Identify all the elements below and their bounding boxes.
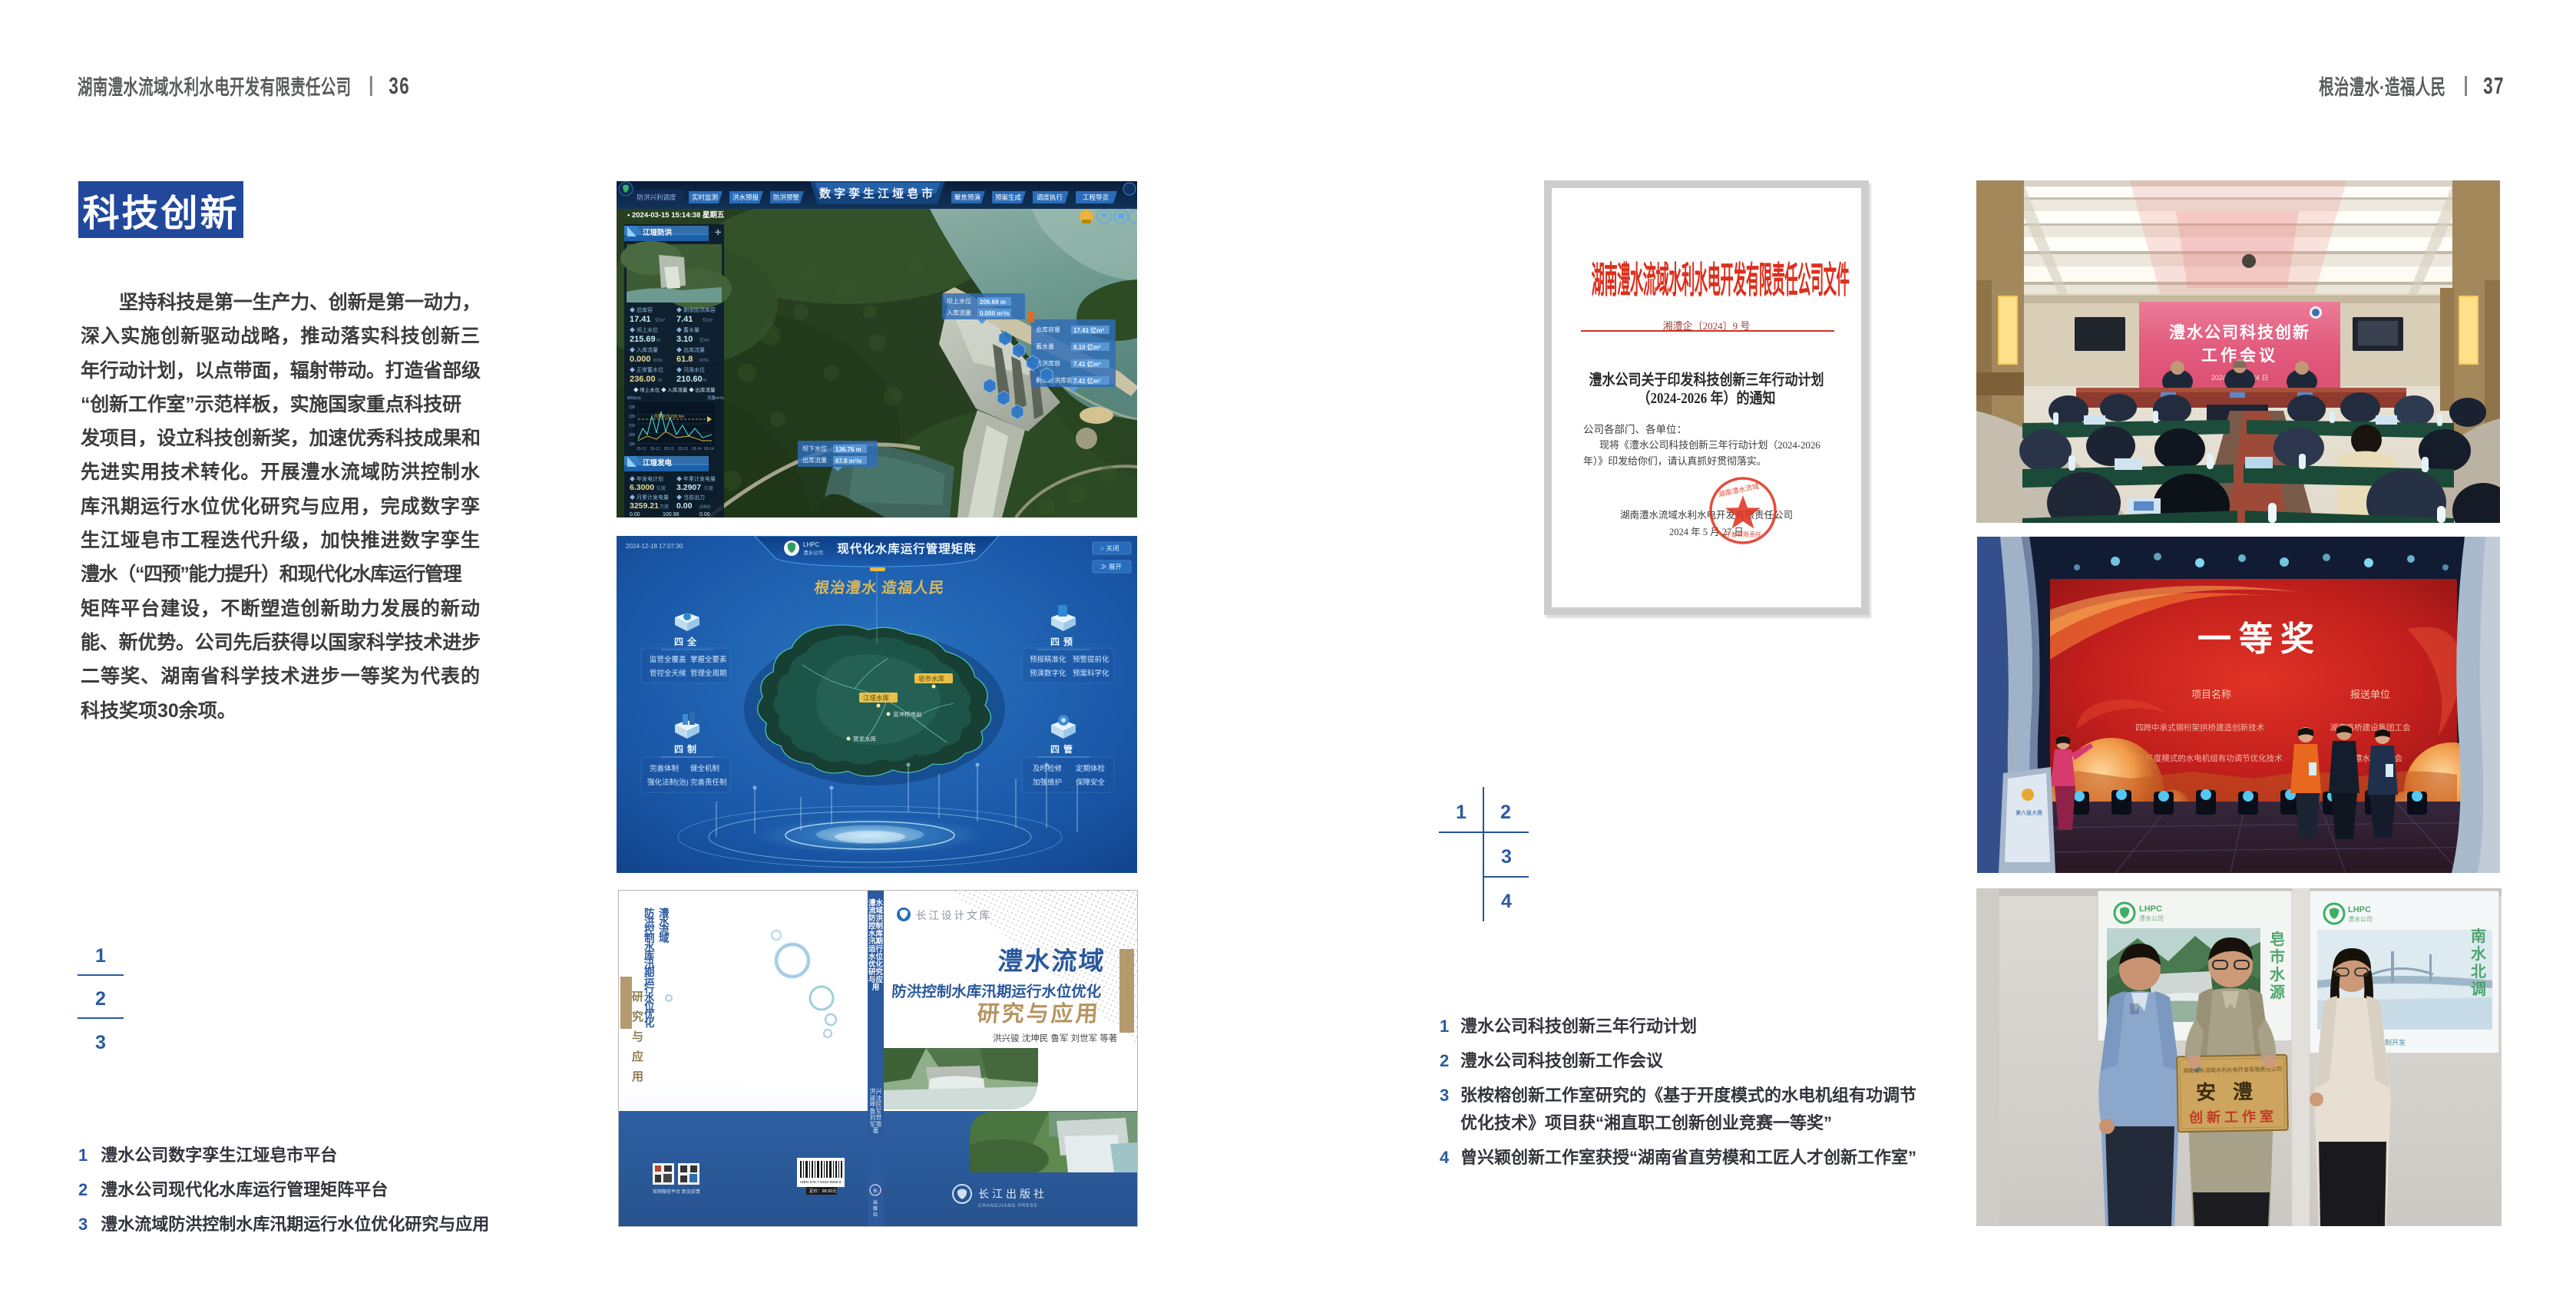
svg-text:澧水公司: 澧水公司 xyxy=(2139,914,2164,922)
svg-text:17.41: 17.41 xyxy=(630,315,651,324)
svg-text:实时监测: 实时监测 xyxy=(692,193,718,201)
svg-text:◆ 汛限水位: ◆ 汛限水位 xyxy=(676,366,705,373)
svg-text:安澧: 安澧 xyxy=(2196,1080,2270,1104)
svg-text:预演数字化: 预演数字化 xyxy=(1030,669,1066,678)
svg-text:136.76 m: 136.76 m xyxy=(835,446,861,453)
svg-text:3.10: 3.10 xyxy=(676,335,693,344)
svg-text:开发有限责任: 开发有限责任 xyxy=(1724,531,1761,538)
svg-text:四制: 四制 xyxy=(674,743,700,755)
svg-text:保障安全: 保障安全 xyxy=(1076,778,1106,787)
svg-text:210: 210 xyxy=(629,424,636,428)
svg-text:LHPC: LHPC xyxy=(2139,904,2162,914)
svg-text:监管全覆盖: 监管全覆盖 xyxy=(650,655,686,664)
svg-text:亿度: 亿度 xyxy=(656,485,666,491)
svg-text:健全机制: 健全机制 xyxy=(690,764,719,773)
svg-text:宜冲桥电站: 宜冲桥电站 xyxy=(893,710,922,718)
svg-text:m: m xyxy=(703,379,706,383)
svg-text:澧水公司科技创新: 澧水公司科技创新 xyxy=(2169,323,2310,342)
svg-text:◆ 坝上水位 ◆ 入库流量 ◆ 出库流量: ◆ 坝上水位 ◆ 入库流量 ◆ 出库流量 xyxy=(633,386,716,393)
svg-text:江垭水库: 江垭水库 xyxy=(863,694,890,702)
svg-text:四管: 四管 xyxy=(1050,743,1076,755)
svg-text:m: m xyxy=(658,379,662,383)
svg-text:强化法制(治): 强化法制(治) xyxy=(647,778,689,787)
svg-text:管理全周期: 管理全周期 xyxy=(690,669,727,678)
svg-text:官网微信平台 意见反馈: 官网微信平台 意见反馈 xyxy=(653,1189,700,1195)
svg-text:◆ 蓄水量: ◆ 蓄水量 xyxy=(676,326,699,333)
svg-text:0.000 m³/s: 0.000 m³/s xyxy=(980,310,1010,317)
svg-text:四预: 四预 xyxy=(1050,636,1076,647)
svg-text:总库容量: 总库容量 xyxy=(1036,326,1060,333)
svg-text:根治澧水 造福人民: 根治澧水 造福人民 xyxy=(813,579,946,597)
svg-text:定价：98.00元: 定价：98.00元 xyxy=(809,1188,837,1194)
svg-text:• 2024-03-15 15:14:38 星期五: • 2024-03-15 15:14:38 星期五 xyxy=(627,210,725,220)
svg-text:ISBN 978-7-5492-9565-9: ISBN 978-7-5492-9565-9 xyxy=(800,1180,842,1185)
svg-text:第六届大赛: 第六届大赛 xyxy=(2015,809,2042,816)
svg-text:长: 长 xyxy=(873,1188,878,1194)
svg-text:m: m xyxy=(656,339,660,343)
svg-text:8.10 亿m³: 8.10 亿m³ xyxy=(1073,343,1101,351)
svg-text:03-13: 03-13 xyxy=(664,447,674,451)
svg-text:17.41 亿m³: 17.41 亿m³ xyxy=(1073,326,1104,334)
svg-text:项目名称: 项目名称 xyxy=(2191,689,2231,700)
svg-text:215.69: 215.69 xyxy=(630,335,656,344)
svg-text:亿m³: 亿m³ xyxy=(703,317,713,323)
svg-text:入库流量: 入库流量 xyxy=(947,309,971,316)
svg-text:版: 版 xyxy=(873,1205,878,1212)
svg-text:◆ 剩余防洪库容: ◆ 剩余防洪库容 xyxy=(676,306,716,313)
svg-text:报送单位: 报送单位 xyxy=(2350,689,2390,700)
svg-text:≫ 展开: ≫ 展开 xyxy=(1100,563,1122,570)
svg-text:长江设计文库: 长江设计文库 xyxy=(916,910,992,921)
svg-text:206.69 m: 206.69 m xyxy=(980,299,1006,306)
svg-text:现代化水库运行管理矩阵: 现代化水库运行管理矩阵 xyxy=(837,541,977,556)
svg-text:100.98: 100.98 xyxy=(663,512,680,517)
svg-text:LHPC: LHPC xyxy=(803,541,820,548)
svg-text:m³/s: m³/s xyxy=(699,359,709,363)
svg-text:亿度: 亿度 xyxy=(704,485,713,491)
svg-text:防洪预警: 防洪预警 xyxy=(773,193,800,201)
svg-text:数字孪生江垭皂市: 数字孪生江垭皂市 xyxy=(819,187,936,200)
svg-text:800(m): 800(m) xyxy=(627,396,641,401)
svg-text:230: 230 xyxy=(629,405,636,410)
svg-text:0.00: 0.00 xyxy=(676,501,693,511)
svg-text:四跨中承式钢桁架拱桥建造创新技术: 四跨中承式钢桁架拱桥建造创新技术 xyxy=(2135,722,2264,732)
svg-text:◆ 年发电计划: ◆ 年发电计划 xyxy=(630,475,663,482)
svg-text:一等奖: 一等奖 xyxy=(2197,620,2322,658)
svg-text:7.41 亿m³: 7.41 亿m³ xyxy=(1073,377,1101,385)
svg-text:◆ 月累计发电量: ◆ 月累计发电量 xyxy=(630,494,669,501)
svg-text:61.8: 61.8 xyxy=(676,355,693,364)
svg-text:03-13: 03-13 xyxy=(650,447,660,451)
svg-text:预警提前化: 预警提前化 xyxy=(1073,655,1109,664)
svg-text:○ 关闭: ○ 关闭 xyxy=(1100,544,1119,552)
svg-text:◆ 总库容: ◆ 总库容 xyxy=(630,306,653,313)
svg-text:防洪兴利调度: 防洪兴利调度 xyxy=(637,193,676,201)
svg-text:7.41: 7.41 xyxy=(676,315,693,324)
svg-text:67.8 m³/s: 67.8 m³/s xyxy=(835,458,862,465)
svg-text:洪水预报: 洪水预报 xyxy=(732,193,759,201)
svg-text:03-13: 03-13 xyxy=(678,447,688,451)
svg-text:7.41 亿m³: 7.41 亿m³ xyxy=(1073,360,1101,368)
svg-text:0.000: 0.000 xyxy=(630,355,651,364)
svg-text:190: 190 xyxy=(629,442,636,447)
svg-text:0.00: 0.00 xyxy=(630,512,640,517)
svg-text:澧水流域: 澧水流域 xyxy=(997,947,1106,976)
svg-text:预案生成: 预案生成 xyxy=(995,193,1022,201)
svg-text:江垭防洪: 江垭防洪 xyxy=(643,228,673,237)
svg-text:工程导览: 工程导览 xyxy=(1083,193,1109,201)
svg-text:◆ 坝上水位: ◆ 坝上水位 xyxy=(630,326,658,333)
svg-text:洪兴骏 沈坤民 鲁军 刘世军 等著: 洪兴骏 沈坤民 鲁军 刘世军 等著 xyxy=(993,1033,1117,1043)
svg-text:6.3000: 6.3000 xyxy=(630,483,654,492)
svg-text:研究与应用: 研究与应用 xyxy=(977,1000,1101,1027)
svg-text:防洪库容: 防洪库容 xyxy=(1036,359,1060,367)
svg-text:出库流量: 出库流量 xyxy=(802,456,827,464)
svg-text:◆ 年累计发电量: ◆ 年累计发电量 xyxy=(676,475,716,482)
svg-text:03-14: 03-14 xyxy=(704,447,714,451)
svg-text:0.00: 0.00 xyxy=(699,512,710,517)
svg-text:m³/s: m³/s xyxy=(653,359,663,363)
svg-text:LHPC: LHPC xyxy=(2348,905,2371,914)
svg-text:江垭发电: 江垭发电 xyxy=(643,458,673,468)
svg-text:四全: 四全 xyxy=(674,636,700,647)
svg-text:调度执行: 调度执行 xyxy=(1037,193,1063,201)
svg-text:亿m³: 亿m³ xyxy=(699,337,709,343)
svg-text:200: 200 xyxy=(629,433,636,438)
svg-text:CHANGJIANG PRESS: CHANGJIANG PRESS xyxy=(978,1204,1037,1208)
svg-text:管控全天候: 管控全天候 xyxy=(650,669,686,678)
svg-text:预报精准化: 预报精准化 xyxy=(1030,655,1066,664)
svg-text:2024-12-18 17:07:30: 2024-12-18 17:07:30 xyxy=(626,543,683,550)
svg-text:掌握全要素: 掌握全要素 xyxy=(690,655,727,664)
svg-text:3259.21: 3259.21 xyxy=(630,501,659,511)
svg-text:加强维护: 加强维护 xyxy=(1033,778,1062,787)
svg-text:坝下水位: 坝下水位 xyxy=(802,445,827,452)
svg-text:236.00: 236.00 xyxy=(630,375,656,384)
svg-text:坝上水位: 坝上水位 xyxy=(947,297,971,305)
svg-text:亿m³: 亿m³ xyxy=(655,317,665,323)
svg-text:流量m³/s: 流量m³/s xyxy=(707,395,724,401)
svg-text:创新工作室: 创新工作室 xyxy=(2188,1108,2277,1126)
svg-text:完善体制: 完善体制 xyxy=(650,764,679,773)
svg-text:汛限水位230.6m: 汛限水位230.6m xyxy=(653,413,685,419)
svg-text:3.2907: 3.2907 xyxy=(676,483,701,492)
svg-text:定期体检: 定期体检 xyxy=(1076,764,1106,773)
svg-text:长江出版社: 长江出版社 xyxy=(978,1189,1047,1201)
svg-text:澧水公司: 澧水公司 xyxy=(803,549,823,556)
svg-text:210.60: 210.60 xyxy=(676,375,703,384)
svg-text:✛: ✛ xyxy=(715,229,721,237)
svg-text:蓄水量: 蓄水量 xyxy=(1036,342,1054,350)
svg-text:完善责任制: 完善责任制 xyxy=(690,778,727,787)
svg-text:(MW): (MW) xyxy=(699,505,711,510)
svg-text:社: 社 xyxy=(873,1212,878,1218)
svg-text:澧水公司: 澧水公司 xyxy=(2348,915,2373,923)
svg-text:03-14: 03-14 xyxy=(692,447,702,451)
svg-text:◆ 当前出力: ◆ 当前出力 xyxy=(676,494,705,501)
svg-text:◆ 入库流量: ◆ 入库流量 xyxy=(630,346,658,353)
svg-text:贺龙水库: 贺龙水库 xyxy=(853,735,876,742)
svg-text:预案科学化: 预案科学化 xyxy=(1073,669,1109,678)
svg-text:万度: 万度 xyxy=(660,504,669,510)
svg-text:出: 出 xyxy=(873,1199,878,1205)
svg-text:皂市水库: 皂市水库 xyxy=(918,675,945,683)
svg-text:◆ 正常蓄水位: ◆ 正常蓄水位 xyxy=(630,366,663,373)
svg-text:防洪控制水库汛期运行水位优化: 防洪控制水库汛期运行水位优化 xyxy=(891,983,1103,1000)
svg-text:◆ 出库流量: ◆ 出库流量 xyxy=(676,346,705,353)
svg-text:220: 220 xyxy=(629,415,636,419)
svg-text:聚焦预演: 聚焦预演 xyxy=(954,193,981,201)
svg-text:03-12: 03-12 xyxy=(637,447,646,451)
